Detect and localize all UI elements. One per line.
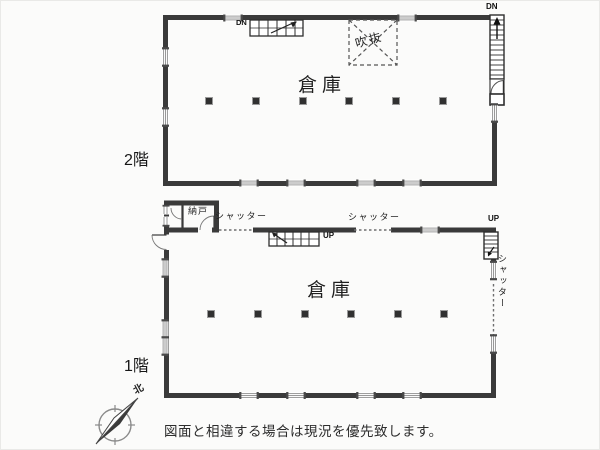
floor-2f-stairs-right-icon [490,15,504,105]
floor-2f-stairs-top-icon [250,20,303,36]
floor-2f-dn-right-label: DN [486,3,498,11]
floor-1f-pillars [208,311,448,318]
floor-2f-room-label: 倉庫 [298,76,346,95]
floor-2f-pillars [206,98,447,105]
floor-1f-stairs-right-icon [484,232,498,259]
floor-1f-shutter-right-label: シャッター [497,254,506,309]
floor-2f-dn-label: DN [236,19,247,27]
floor-1f-storeroom-label: 納戸 [188,207,208,216]
floor-1f-shutter-center-label: シャッター [348,213,401,222]
disclaimer-text: 図面と相違する場合は現況を優先致します。 [164,425,443,439]
floor-2f-label: 2階 [124,153,149,169]
compass-icon [95,398,138,445]
floor-1f-label: 1階 [124,359,149,375]
floor-1f-shutter-lines [219,230,494,336]
floor-1f-shutter-left-label: シャッター [215,212,268,221]
floor-1f-stairs-center-icon [269,232,319,246]
floor-plan-drawing [1,1,600,450]
floor-plan-page: 2階 倉庫 吹抜 DN DN 1階 倉庫 納戸 シャッター シャッター シャッタ… [0,0,600,450]
floor-1f-room-label: 倉庫 [307,281,355,300]
floor-1f-up-center-label: UP [323,232,334,240]
floor-1f-up-right-label: UP [488,215,499,223]
